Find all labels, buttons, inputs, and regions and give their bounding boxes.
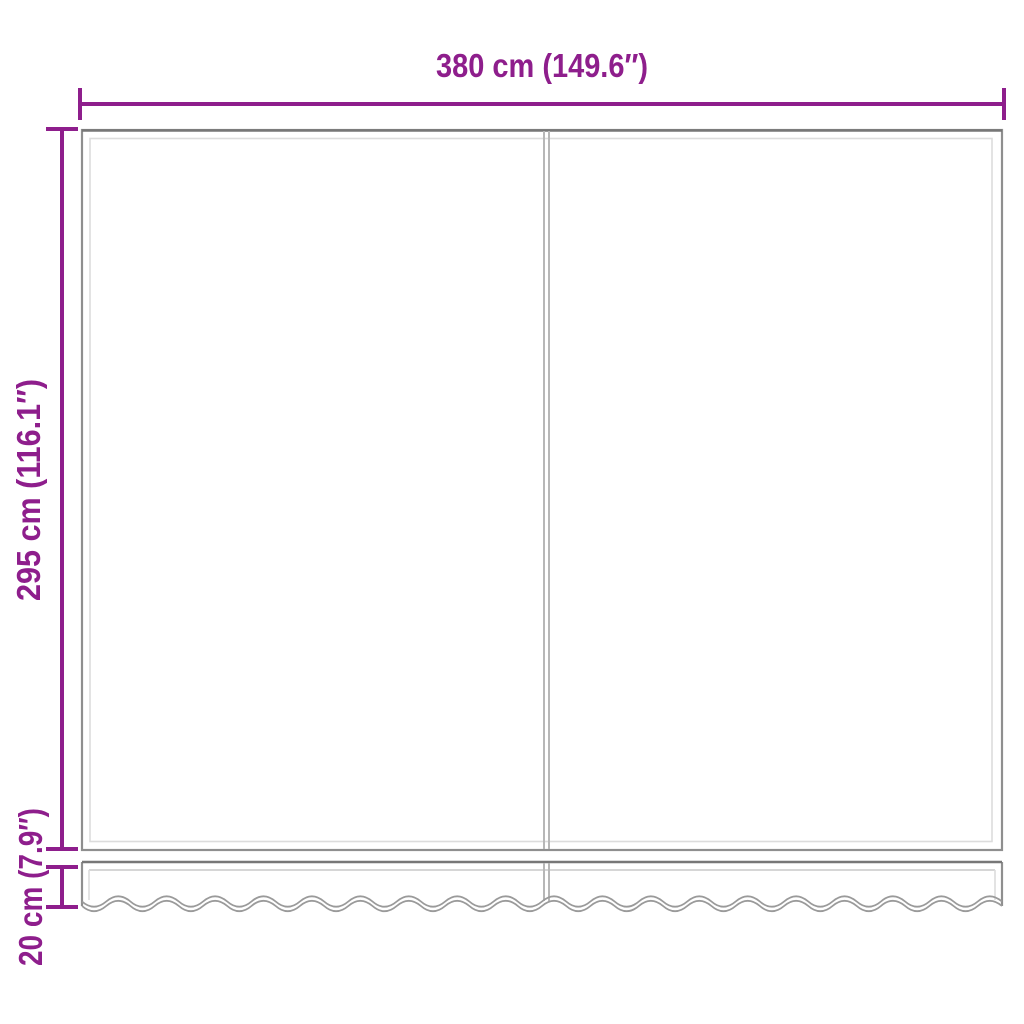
valance-height-dimension: 20 cm (7.9″) [12,808,78,966]
valance-height-dimension-label: 20 cm (7.9″) [12,808,49,966]
height-dimension-label: 295 cm (116.1″) [10,379,47,601]
dimension-diagram: 380 cm (149.6″) 295 cm (116.1″) 20 cm (7… [0,0,1024,1024]
panel-outline [82,130,1002,850]
diagram-svg: 380 cm (149.6″) 295 cm (116.1″) 20 cm (7… [0,0,1024,1024]
awning-fabric-panel [82,130,1002,850]
height-dimension-line [46,129,78,849]
width-dimension-line [80,88,1004,120]
width-dimension-label: 380 cm (149.6″) [436,47,648,84]
valance-height-dimension-line [46,867,78,907]
valance-side-edges [82,862,1002,906]
valance-center-seam [544,863,549,901]
valance-strip [82,862,1002,911]
width-dimension: 380 cm (149.6″) [80,47,1004,120]
height-dimension: 295 cm (116.1″) [10,129,78,849]
valance-inner-seams [89,870,995,900]
